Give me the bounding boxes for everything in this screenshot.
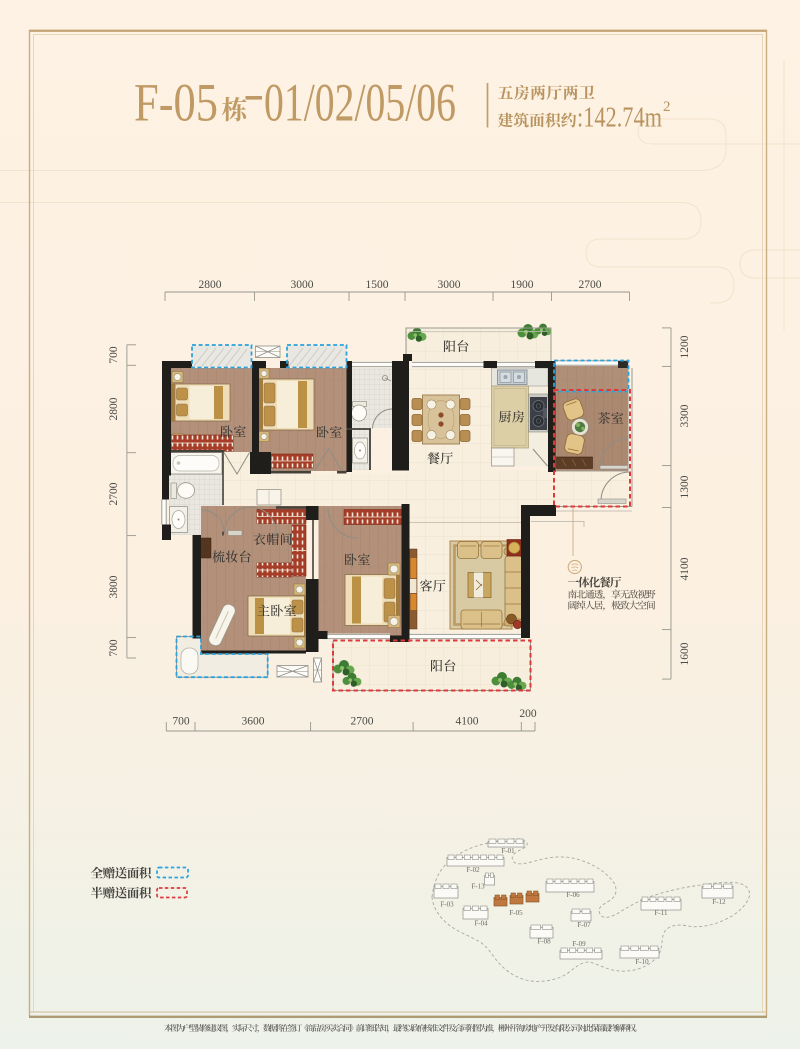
svg-text:F-01: F-01 <box>501 847 515 855</box>
svg-text:200: 200 <box>519 708 537 720</box>
svg-text:F-02: F-02 <box>466 866 480 874</box>
svg-text:F-08: F-08 <box>537 938 551 946</box>
svg-text:700: 700 <box>108 346 120 364</box>
svg-text:F-12: F-12 <box>712 898 726 906</box>
svg-text:2700: 2700 <box>579 279 602 291</box>
svg-text:2700: 2700 <box>108 482 120 505</box>
svg-text:700: 700 <box>172 716 190 728</box>
svg-text:F-09: F-09 <box>572 940 586 948</box>
svg-text::142.74m: :142.74m <box>577 103 662 134</box>
svg-text:F-10: F-10 <box>635 958 649 966</box>
svg-text:F-13: F-13 <box>471 883 485 891</box>
svg-text:3000: 3000 <box>438 279 461 291</box>
svg-text:3300: 3300 <box>679 404 691 427</box>
svg-text:F-05: F-05 <box>509 909 523 917</box>
svg-text:700: 700 <box>108 639 120 657</box>
svg-text:F-11: F-11 <box>655 909 668 917</box>
svg-text:1200: 1200 <box>679 335 691 358</box>
svg-text:4100: 4100 <box>456 716 479 728</box>
svg-text:1500: 1500 <box>366 279 389 291</box>
svg-text:1600: 1600 <box>679 642 691 665</box>
svg-text:F-06: F-06 <box>566 891 580 899</box>
svg-text:3000: 3000 <box>291 279 314 291</box>
svg-text:4100: 4100 <box>679 557 691 580</box>
svg-text:3600: 3600 <box>242 716 265 728</box>
svg-text:1300: 1300 <box>679 475 691 498</box>
svg-text:F-04: F-04 <box>474 920 488 928</box>
svg-text:2700: 2700 <box>351 716 374 728</box>
svg-text:3800: 3800 <box>108 575 120 598</box>
svg-text:F-05: F-05 <box>134 73 218 133</box>
svg-text:2800: 2800 <box>108 397 120 420</box>
svg-text:F-03: F-03 <box>440 901 454 909</box>
svg-text:2800: 2800 <box>199 279 222 291</box>
svg-text:2: 2 <box>663 99 671 115</box>
svg-text:1900: 1900 <box>511 279 534 291</box>
svg-text:F-07: F-07 <box>577 921 591 929</box>
svg-text:01/02/05/06: 01/02/05/06 <box>264 73 456 133</box>
